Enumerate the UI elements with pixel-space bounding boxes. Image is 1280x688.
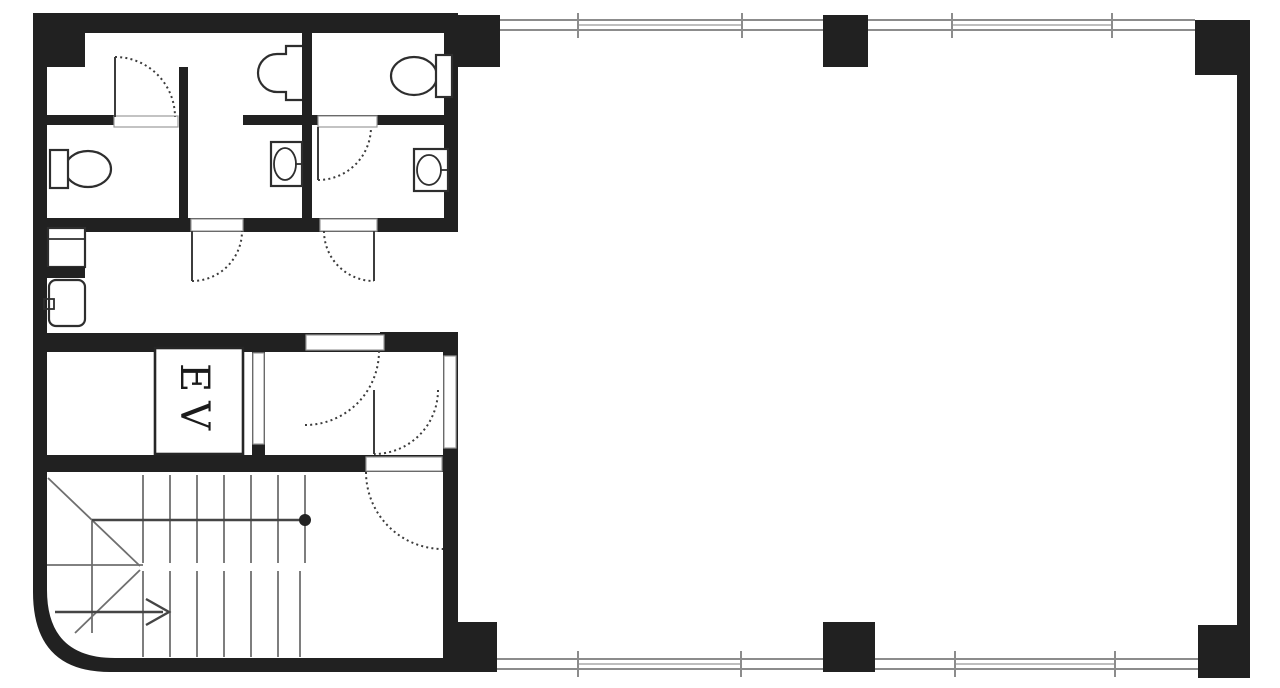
stair-winders: [47, 478, 143, 633]
top-wall: [33, 13, 458, 33]
ev-room-top-wall: [33, 333, 458, 352]
door-arc: [374, 390, 438, 454]
door-threshold: [191, 219, 243, 231]
stall-divider-wall: [302, 13, 312, 232]
fixtures: [44, 46, 452, 326]
door-arc: [318, 127, 371, 180]
top-left-corner-block: [33, 13, 85, 67]
door-threshold: [320, 219, 377, 231]
counter-divider: [45, 267, 85, 278]
right-wall: [1237, 20, 1250, 678]
elevator-label: EV: [171, 363, 217, 439]
door-threshold: [366, 457, 442, 471]
floor-plan-page: EV: [0, 0, 1280, 688]
column: [823, 622, 875, 672]
stall-divider-wall: [179, 67, 188, 232]
floor-plan-drawing: EV: [0, 0, 1280, 688]
door-arc: [366, 472, 443, 549]
utility-sink-icon: [44, 280, 85, 326]
door-arc: [305, 351, 379, 425]
ev-divider-jamb: [253, 353, 264, 444]
corridor-wall: [33, 218, 458, 232]
windows: [497, 13, 1198, 677]
counter: [48, 228, 85, 267]
hand-sink-icon: [414, 149, 448, 191]
toilet-icon: [391, 55, 452, 97]
column: [455, 622, 497, 672]
door-arc: [192, 231, 242, 281]
columns: [455, 15, 1250, 678]
elevator: EV: [155, 348, 243, 454]
column: [823, 15, 868, 67]
door-arc: [115, 57, 175, 117]
urinal-icon: [258, 46, 302, 100]
hand-sink-icon: [271, 142, 303, 186]
toilet-block-walls: [33, 13, 458, 232]
stairs: [47, 475, 311, 657]
handrail-newel-dot: [299, 514, 311, 526]
stair-direction-arrow: [55, 599, 169, 625]
door-threshold: [318, 116, 377, 127]
door-threshold: [114, 116, 178, 127]
column: [455, 15, 500, 67]
door-arc: [324, 231, 374, 281]
divider-door-jamb: [444, 356, 456, 448]
toilet-icon: [50, 150, 111, 188]
bottom-right-corner-column: [1198, 625, 1250, 678]
door-threshold: [306, 335, 384, 350]
